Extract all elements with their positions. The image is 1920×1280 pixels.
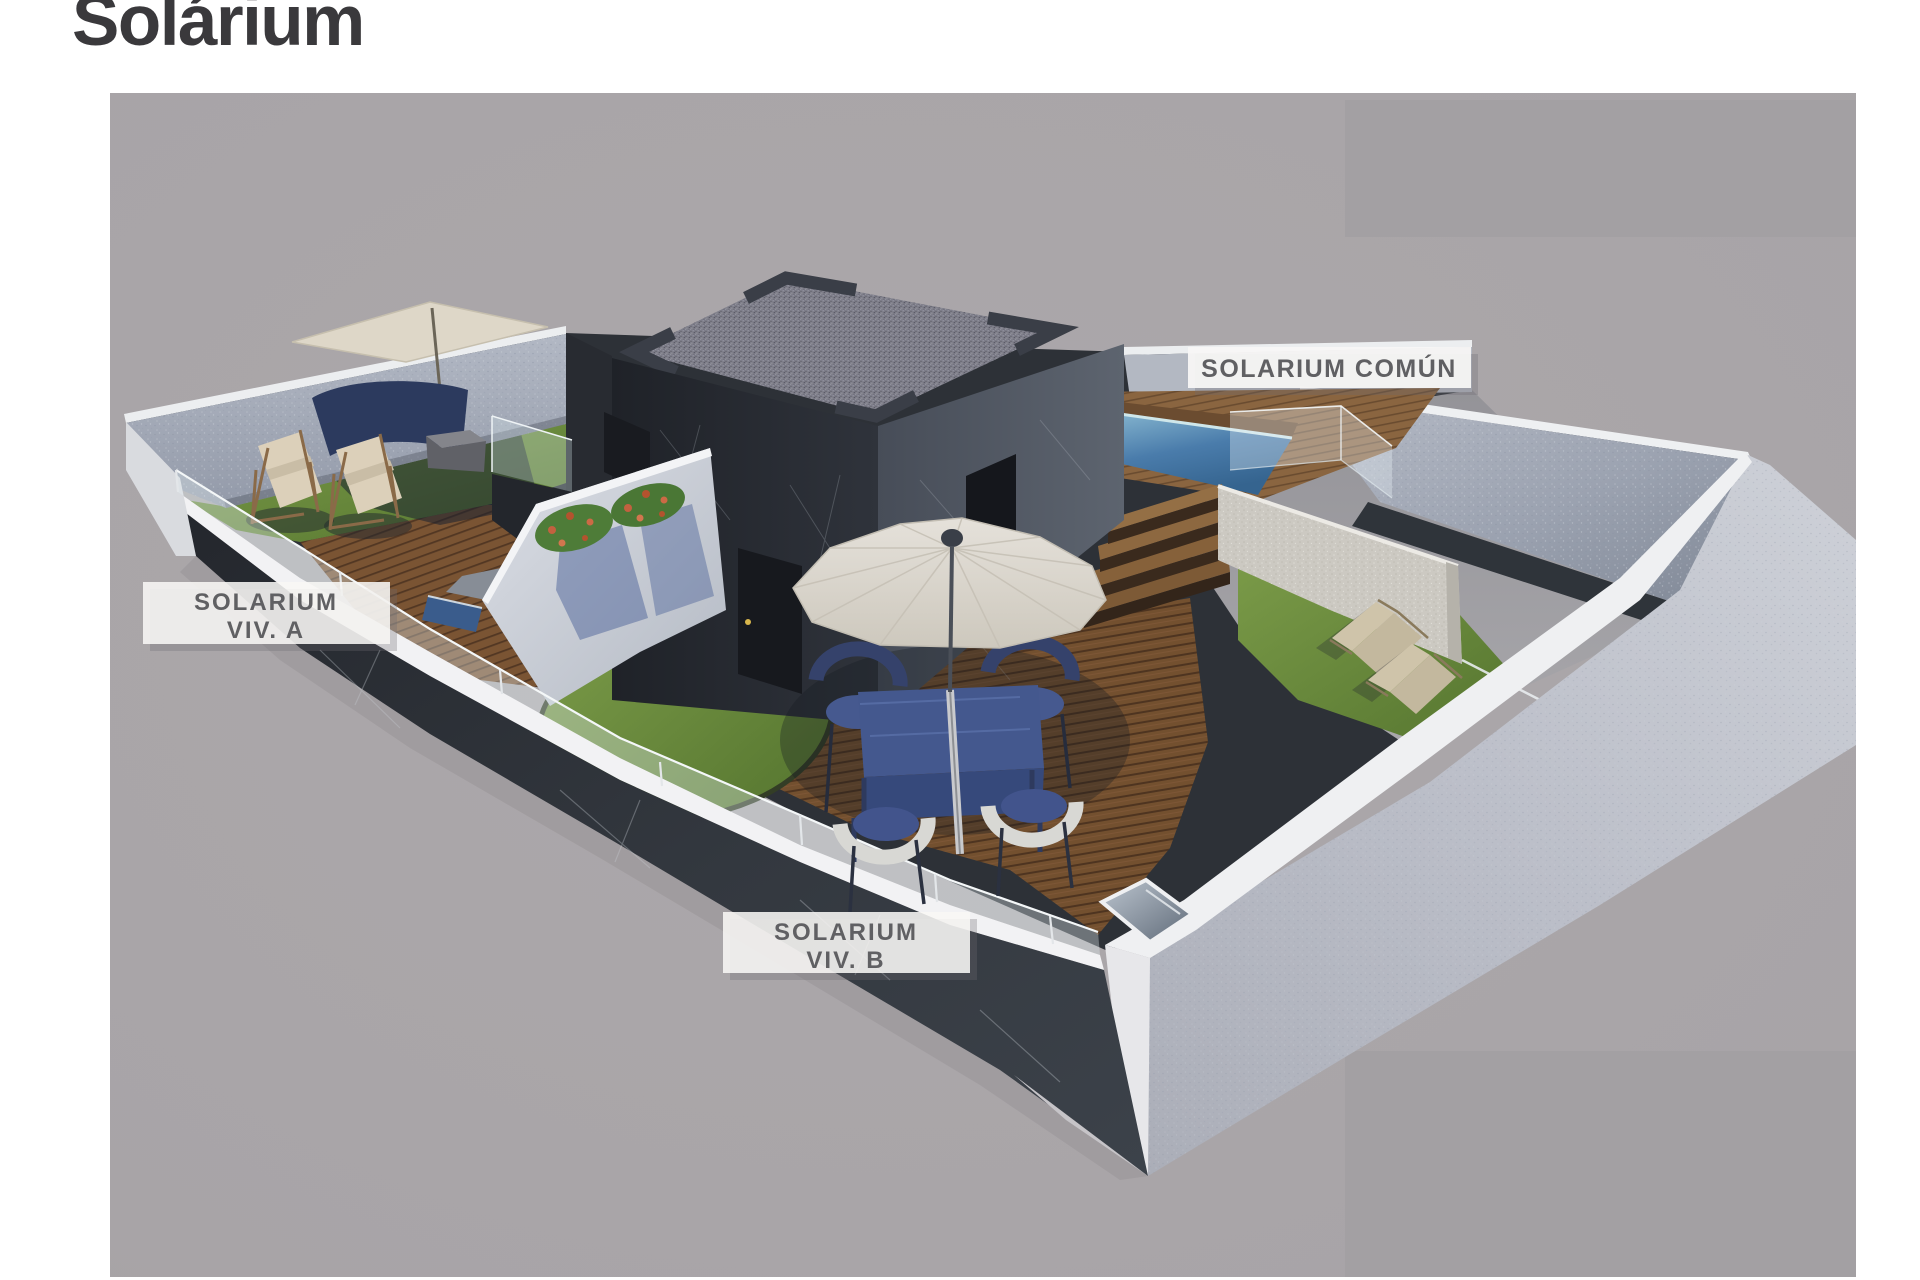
svg-text:VIV. A: VIV. A: [227, 617, 305, 644]
svg-text:SOLARIUM: SOLARIUM: [774, 919, 918, 946]
svg-text:Solárium: Solárium: [72, 0, 364, 61]
svg-text:SOLARIUM COMÚN: SOLARIUM COMÚN: [1201, 353, 1457, 383]
svg-text:SOLARIUM: SOLARIUM: [194, 589, 338, 616]
svg-text:VIV. B: VIV. B: [806, 947, 885, 974]
